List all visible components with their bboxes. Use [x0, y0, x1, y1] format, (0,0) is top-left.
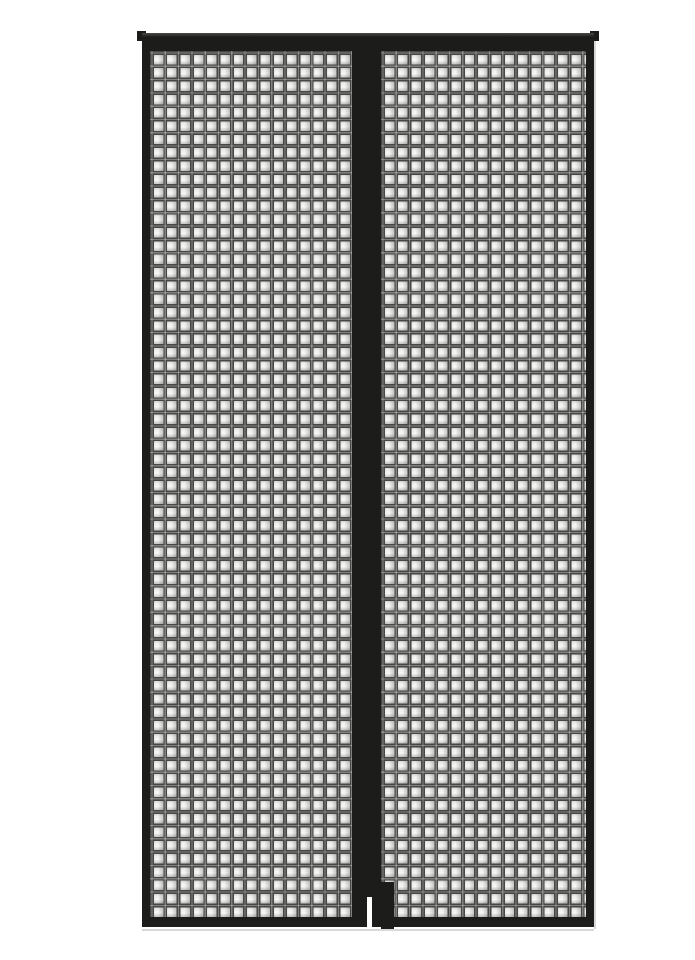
left-mesh-panel	[150, 51, 352, 917]
product-image-canvas	[0, 0, 695, 960]
bottom-seam-gap	[367, 897, 372, 929]
magnetic-screen-door	[142, 31, 594, 929]
bottom-magnet-block	[381, 882, 394, 929]
right-frame-edge	[586, 51, 594, 927]
right-mesh-panel	[381, 51, 586, 917]
top-mounting-bar	[142, 33, 594, 51]
left-frame-edge	[142, 51, 150, 927]
center-magnetic-seam	[352, 51, 381, 927]
